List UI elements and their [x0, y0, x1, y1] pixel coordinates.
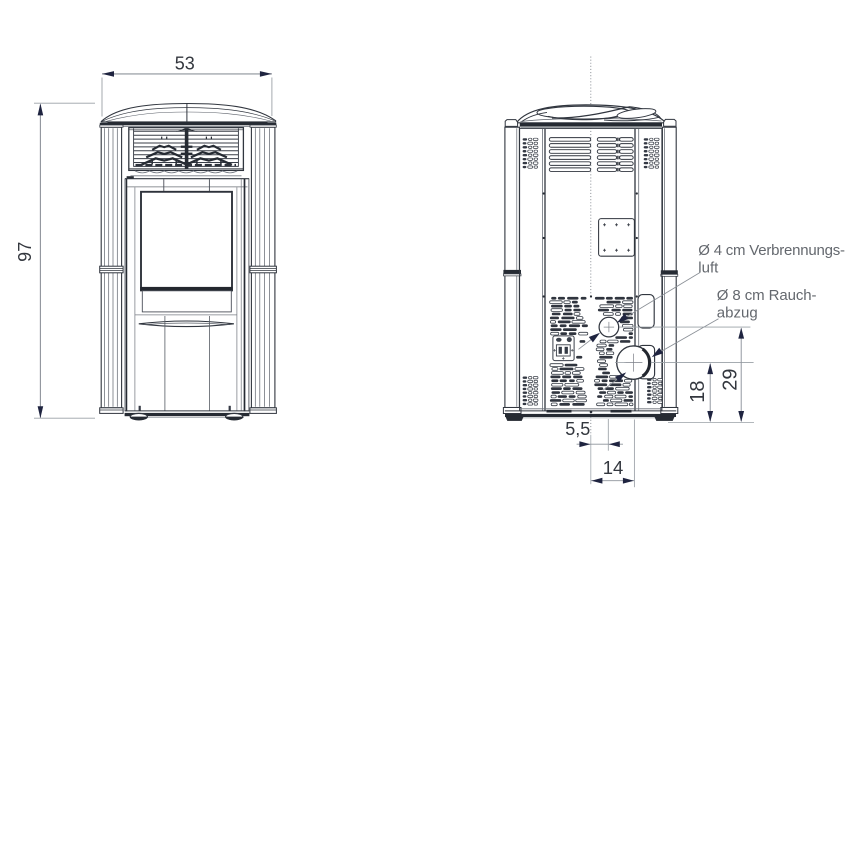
- svg-text:luft: luft: [698, 259, 719, 276]
- svg-text:abzug: abzug: [717, 304, 758, 321]
- svg-text:14: 14: [603, 457, 624, 478]
- svg-text:29: 29: [719, 368, 741, 390]
- svg-text:53: 53: [175, 53, 195, 73]
- svg-text:Ø 8 cm Rauch-: Ø 8 cm Rauch-: [717, 287, 817, 304]
- svg-text:5,5: 5,5: [565, 419, 590, 439]
- svg-text:97: 97: [15, 242, 35, 262]
- svg-text:18: 18: [687, 380, 709, 402]
- svg-text:Ø 4 cm Verbrennungs-: Ø 4 cm Verbrennungs-: [698, 242, 845, 259]
